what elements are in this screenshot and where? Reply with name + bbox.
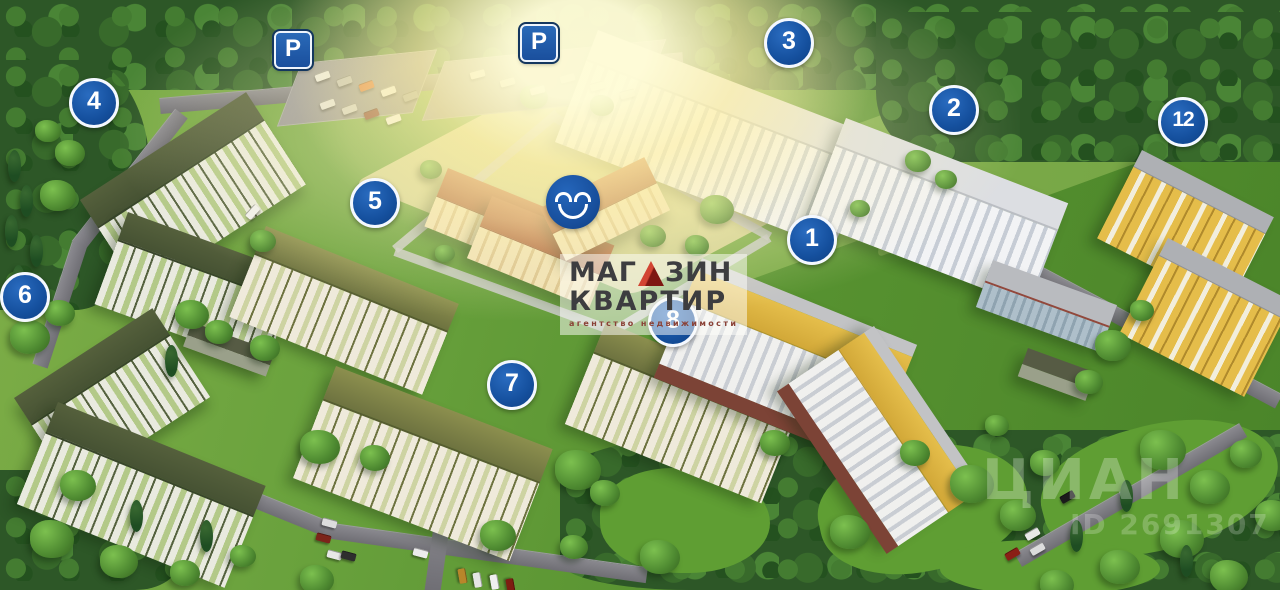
tree [45,300,75,326]
building-marker-1: 1 [787,215,837,265]
conifer-tree [130,500,143,532]
tree [100,545,138,578]
tree [205,320,233,344]
car [505,578,515,590]
parking-sign-icon: P [274,31,312,69]
agency-brand-line2: КВАРТИР [569,286,738,317]
agency-brand-part: ЗИН [665,260,732,286]
tree [1190,470,1230,504]
tree [700,195,734,224]
tree [560,535,588,559]
building-marker-2: 2 [929,85,979,135]
triangle-logo-icon [638,261,664,286]
tree [40,180,76,211]
tree [640,225,666,247]
tree [250,230,276,252]
parking-sign-icon: P [520,24,558,62]
site-plan-render: 1234567812PP МАГ ЗИН КВАРТИР агентство н… [0,0,1280,590]
tree [30,520,74,558]
forest-top-right [876,12,1280,162]
tree [1230,440,1262,468]
tree [830,515,870,549]
building-marker-12: 12 [1158,97,1208,147]
tree [170,560,200,586]
tree [55,140,85,166]
car [472,572,482,588]
tree [175,300,209,329]
agency-tagline: агентство недвижимости [569,319,738,329]
tree [905,150,931,172]
conifer-tree [200,520,213,552]
car [457,568,467,584]
tree [590,480,620,506]
tree [900,440,930,466]
conifer-tree [20,185,33,217]
tree [1100,550,1140,584]
tree [300,565,334,590]
tree [640,540,680,574]
tree [35,120,61,142]
agency-watermark: МАГ ЗИН КВАРТИР агентство недвижимости [560,254,747,335]
photo-watermark-id: ID 2691307 [1070,510,1270,540]
photo-watermark-brand: ЦИАН [982,452,1187,510]
car [489,574,499,590]
smiley-face-icon [546,175,600,229]
building-marker-5: 5 [350,178,400,228]
tree [1130,300,1154,321]
conifer-tree [8,150,21,182]
tree [760,430,790,456]
building-marker-3: 3 [764,18,814,68]
tree [250,335,280,361]
tree [360,445,390,471]
building-marker-7: 7 [487,360,537,410]
agency-brand-line1: МАГ ЗИН [569,260,738,286]
tree [590,95,614,116]
tree [685,235,709,256]
building-marker-4: 4 [69,78,119,128]
car [340,550,357,562]
tree [60,470,96,501]
tree [1075,370,1103,394]
conifer-tree [165,345,178,377]
agency-brand-part: МАГ [569,260,637,286]
tree [850,200,870,217]
tree [1210,560,1248,590]
conifer-tree [30,235,43,267]
tree [300,430,340,464]
tree [230,545,256,567]
tree [985,415,1009,436]
tree [480,520,516,551]
conifer-tree [1180,545,1193,577]
tree [10,320,50,354]
tree [935,170,957,189]
tree [1095,330,1131,361]
tree [420,160,442,179]
conifer-tree [5,215,18,247]
tree [435,245,455,262]
building-marker-6: 6 [0,272,50,322]
